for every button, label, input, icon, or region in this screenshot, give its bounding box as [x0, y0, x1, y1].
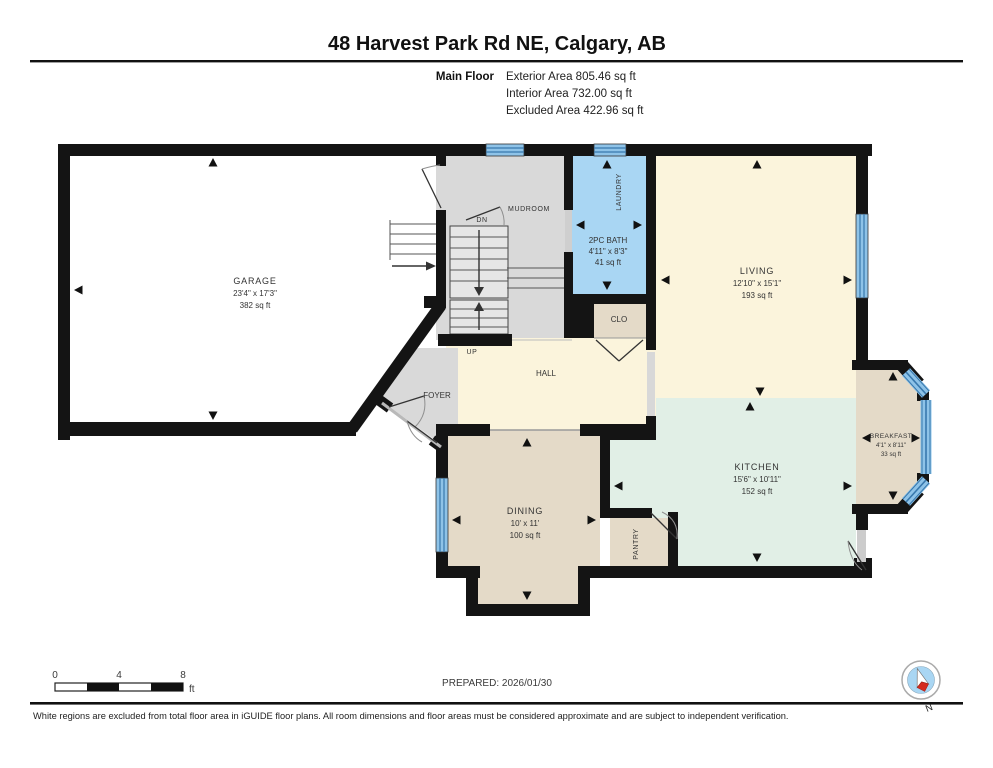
- wall-left: [58, 144, 70, 440]
- window-living-right: [856, 214, 868, 298]
- breakfast-label: BREAKFAST: [870, 433, 912, 440]
- bath-area: 41 sq ft: [595, 258, 622, 267]
- dining-label: DINING: [507, 506, 543, 516]
- wall-garage-bottom: [58, 422, 356, 436]
- wall-pantry-top: [600, 508, 652, 518]
- stairs-up: [450, 300, 508, 334]
- wall-bottom-main: [578, 566, 872, 578]
- wall-hall-kitchen: [604, 424, 656, 440]
- room-fills: [66, 150, 925, 604]
- wall-bump-bottom: [466, 604, 590, 616]
- dining-dims: 10' x 11': [511, 519, 540, 528]
- foyer-label: FOYER: [423, 391, 451, 400]
- pantry-label: PANTRY: [633, 528, 640, 559]
- living-label: LIVING: [740, 266, 774, 276]
- bath-dims: 4'11" x 8'3": [589, 247, 628, 256]
- prepared-date: PREPARED: 2026/01/30: [442, 678, 552, 689]
- garage-area: 382 sq ft: [240, 301, 271, 310]
- wall-garage-right-a: [436, 150, 446, 166]
- wall-closet-left: [564, 296, 594, 338]
- wall-below-stairs: [438, 334, 512, 346]
- living-doorway-panel: [647, 352, 655, 416]
- floor-label: Main Floor: [436, 71, 495, 83]
- living-area: 193 sq ft: [742, 291, 773, 300]
- window-top-laundry: [594, 144, 626, 156]
- wall-living-right-b: [856, 298, 868, 364]
- wall-bay-bottom: [852, 504, 908, 514]
- wall-living-left-a: [646, 156, 656, 350]
- wall-top: [58, 144, 872, 156]
- wall-laundry-left-a: [564, 156, 573, 210]
- laundry-label: LAUNDRY: [616, 173, 623, 211]
- page-title: 48 Harvest Park Rd NE, Calgary, AB: [328, 33, 666, 55]
- breakfast-dims: 4'1" x 8'11": [876, 442, 906, 449]
- interior-area: Interior Area 732.00 sq ft: [506, 88, 633, 100]
- excluded-area: Excluded Area 422.96 sq ft: [506, 105, 644, 117]
- hall-label: HALL: [536, 369, 557, 378]
- footer-divider: [30, 702, 963, 705]
- wall-garage-right-b: [436, 210, 446, 308]
- scale-bar: 0 4 8 ft: [52, 670, 195, 695]
- living-dims: 12'10" x 15'1": [733, 279, 781, 288]
- scale-unit: ft: [189, 684, 195, 695]
- breakfast-area: 33 sq ft: [881, 451, 902, 458]
- floor-plan-page: 48 Harvest Park Rd NE, Calgary, AB Main …: [0, 0, 993, 768]
- dining-area: 100 sq ft: [510, 531, 541, 540]
- header-divider: [30, 60, 963, 62]
- wall-kitchen-right-a: [856, 514, 868, 530]
- hall-dining-opening-bottom: [490, 430, 580, 436]
- disclaimer-text: White regions are excluded from total fl…: [33, 711, 789, 721]
- stairs-down-label: DN: [476, 217, 487, 224]
- stairs-up-label: UP: [467, 349, 478, 356]
- compass-icon: N: [902, 661, 940, 715]
- mudroom-label: MUDROOM: [508, 206, 550, 213]
- bath-label: 2PC BATH: [589, 236, 628, 245]
- closet-label: CLO: [611, 315, 627, 324]
- window-top-mudroom: [486, 144, 524, 156]
- wall-laundry-left-b: [564, 252, 573, 296]
- exterior-area: Exterior Area 805.46 sq ft: [506, 71, 637, 83]
- kitchen-area: 152 sq ft: [742, 487, 773, 496]
- scale-tick-8: 8: [180, 670, 186, 681]
- wall-stair-stub: [424, 296, 446, 308]
- wall-living-right-a: [856, 150, 868, 214]
- floor-plan-canvas: 48 Harvest Park Rd NE, Calgary, AB Main …: [0, 0, 993, 768]
- garage-dims: 23'4" x 17'3": [233, 289, 277, 298]
- garage-label: GARAGE: [233, 276, 276, 286]
- window-dining-left: [436, 478, 448, 552]
- window-bay-right: [922, 400, 930, 474]
- room-living: [656, 156, 856, 398]
- scale-tick-4: 4: [116, 670, 122, 681]
- wall-dining-right: [600, 432, 610, 518]
- kitchen-dims: 15'6" x 10'11": [733, 475, 781, 484]
- room-hall: [446, 338, 656, 430]
- scale-tick-0: 0: [52, 670, 58, 681]
- hall-dining-opening-top: [490, 424, 580, 430]
- bath-door-panel: [565, 210, 572, 252]
- kitchen-label: KITCHEN: [734, 462, 779, 472]
